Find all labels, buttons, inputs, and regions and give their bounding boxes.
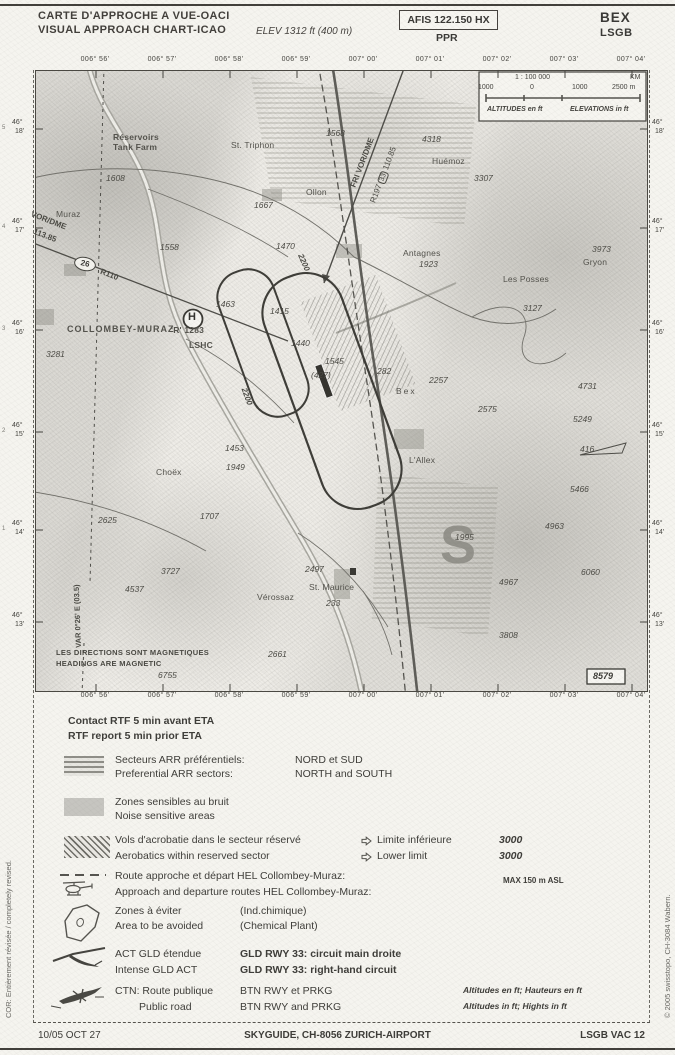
- latitude-label-right-min: 15': [655, 431, 664, 439]
- right-frame-border: [649, 70, 650, 1023]
- longitude-label-top: 006° 59': [282, 56, 311, 63]
- longitude-label-bottom: 006° 56': [81, 692, 110, 699]
- helicopter-icon: [59, 879, 99, 902]
- variation-line: [82, 71, 104, 691]
- left-frame-border: [33, 70, 34, 1023]
- circuit-west-loop: [210, 262, 316, 425]
- copyright-note: © 2005 swisstopo, CH-3084 Wabern.: [663, 894, 672, 1018]
- lower-limit-en: Lower limit: [377, 850, 427, 862]
- correction-note: COR: Entièrement révisée / completely re…: [4, 860, 13, 1018]
- latitude-label-left-min: 16': [15, 329, 24, 337]
- latitude-label-right-min: 17': [655, 227, 664, 235]
- latitude-index: 3: [2, 326, 5, 332]
- latitude-label-left-deg: 46°: [12, 612, 23, 620]
- avoid-zone-en: Area to be avoided: [115, 920, 203, 932]
- latitude-label-right-deg: 46°: [652, 320, 663, 328]
- afis-frequency-box: AFIS 122.150 HX: [399, 10, 498, 30]
- footer-publisher: SKYGUIDE, CH-8056 ZURICH-AIRPORT: [0, 1030, 675, 1041]
- lower-limit-value-fr: 3000: [499, 834, 522, 846]
- contact-note-fr: Contact RTF 5 min avant ETA: [68, 715, 214, 727]
- avoid-zone-icon: [57, 901, 103, 948]
- latitude-label-right-deg: 46°: [652, 218, 663, 226]
- top-rule: [0, 4, 675, 6]
- longitude-label-top: 007° 01': [416, 56, 445, 63]
- longitude-label-top: 006° 57': [148, 56, 177, 63]
- longitude-label-bottom: 007° 03': [550, 692, 579, 699]
- ppr-label: PPR: [436, 32, 458, 44]
- latitude-label-left-deg: 46°: [12, 320, 23, 328]
- latitude-label-right-deg: 46°: [652, 119, 663, 127]
- bottom-rule: [0, 1048, 675, 1050]
- longitude-label-top: 007° 00': [349, 56, 378, 63]
- latitude-label-left-min: 17': [15, 227, 24, 235]
- latitude-label-right-deg: 46°: [652, 422, 663, 430]
- arr-sector-swatch: [64, 756, 104, 776]
- latitude-label-left-min: 14': [15, 529, 24, 537]
- arr-sectors-fr: Secteurs ARR préférentiels:: [115, 754, 245, 766]
- arr-sectors-value-en: NORTH and SOUTH: [295, 768, 392, 780]
- latitude-index: 2: [2, 428, 5, 434]
- aerobatics-en: Aerobatics within reserved sector: [115, 850, 270, 862]
- longitude-label-bottom: 007° 01': [416, 692, 445, 699]
- latitude-label-right-min: 13': [655, 621, 664, 629]
- latitude-label-right-deg: 46°: [652, 612, 663, 620]
- longitude-label-top: 006° 58': [215, 56, 244, 63]
- map-area: S: [35, 70, 648, 692]
- longitude-label-bottom: 007° 04': [617, 692, 646, 699]
- noise-areas-en: Noise sensitive areas: [115, 810, 215, 822]
- avoid-zone-value-en: (Chemical Plant): [240, 920, 318, 932]
- contact-note-en: RTF report 5 min prior ETA: [68, 730, 202, 742]
- caution-aircraft-icon: [49, 981, 107, 1014]
- glider-activity-en: Intense GLD ACT: [115, 964, 197, 976]
- hel-route-fr: Route approche et départ HEL Collombey-M…: [115, 870, 345, 882]
- caution-road-en: Public road: [139, 1001, 192, 1013]
- heliport-circle: [184, 310, 203, 329]
- glider-icon: [51, 945, 107, 974]
- elevation-note: ELEV 1312 ft (400 m): [256, 26, 352, 37]
- airport-name: BEX: [600, 10, 631, 25]
- hel-route-dash-sample: [60, 874, 106, 876]
- caution-road-value-en: BTN RWY and PRKG: [240, 1001, 341, 1013]
- latitude-index: 1: [2, 526, 5, 532]
- chart-title-en: VISUAL APPROACH CHART-ICAO: [38, 24, 226, 36]
- latitude-label-left-min: 13': [15, 621, 24, 629]
- latitude-label-right-min: 14': [655, 529, 664, 537]
- avoid-zone-fr: Zones à éviter: [115, 905, 182, 917]
- units-note-fr: Altitudes en ft; Hauteurs en ft: [463, 985, 582, 995]
- legend-panel: Contact RTF 5 min avant ETA RTF report 5…: [35, 705, 646, 1022]
- lower-limit-value-en: 3000: [499, 850, 522, 862]
- latitude-label-left-deg: 46°: [12, 520, 23, 528]
- noise-area-swatch: [64, 798, 104, 816]
- latitude-label-left-deg: 46°: [12, 422, 23, 430]
- latitude-index: 4: [2, 224, 5, 230]
- chart-page: CARTE D'APPROCHE A VUE-OACI VISUAL APPRO…: [0, 0, 675, 1055]
- monument-symbol: [350, 568, 356, 575]
- arr-sectors-en: Preferential ARR sectors:: [115, 768, 233, 780]
- latitude-label-right-deg: 46°: [652, 520, 663, 528]
- avoid-zone-value-fr: (Ind.chimique): [240, 905, 307, 917]
- chart-title-fr: CARTE D'APPROCHE A VUE-OACI: [38, 10, 230, 22]
- noise-areas-fr: Zones sensibles au bruit: [115, 796, 229, 808]
- sector-north-hatch: [251, 77, 476, 227]
- arr-sectors-value-fr: NORD et SUD: [295, 754, 363, 766]
- longitude-label-bottom: 006° 57': [148, 692, 177, 699]
- longitude-label-bottom: 006° 58': [215, 692, 244, 699]
- arrow-right-icon: [361, 852, 372, 862]
- longitude-label-top: 007° 03': [550, 56, 579, 63]
- lower-limit-fr: Limite inférieure: [377, 834, 452, 846]
- longitude-label-top: 007° 02': [483, 56, 512, 63]
- latitude-label-right-min: 18': [655, 128, 664, 136]
- glider-activity-value-fr: GLD RWY 33: circuit main droite: [240, 948, 401, 960]
- aerobatics-fr: Vols d'acrobatie dans le secteur réservé: [115, 834, 301, 846]
- airport-icao-code: LSGB: [600, 27, 633, 39]
- units-note-en: Altitudes in ft; Hights in ft: [463, 1001, 567, 1011]
- footer-chart-ref: LSGB VAC 12: [580, 1030, 645, 1041]
- latitude-index: 5: [2, 125, 5, 131]
- longitude-label-bottom: 007° 02': [483, 692, 512, 699]
- boxed-elevation-frame: [587, 669, 625, 684]
- latitude-label-left-deg: 46°: [12, 119, 23, 127]
- hel-route-en: Approach and departure routes HEL Collom…: [115, 886, 371, 898]
- longitude-label-top: 006° 56': [81, 56, 110, 63]
- longitude-label-bottom: 007° 00': [349, 692, 378, 699]
- hel-route-max-note: MAX 150 m ASL: [503, 876, 564, 885]
- glider-activity-fr: ACT GLD étendue: [115, 948, 201, 960]
- latitude-label-left-min: 15': [15, 431, 24, 439]
- glider-site-symbol: [580, 443, 626, 455]
- latitude-label-right-min: 16': [655, 329, 664, 337]
- latitude-label-left-min: 18': [15, 128, 24, 136]
- sector-letter-south: S: [440, 515, 476, 575]
- caution-road-value-fr: BTN RWY et PRKG: [240, 985, 332, 997]
- longitude-label-top: 007° 04': [617, 56, 646, 63]
- arrow-right-icon: [361, 836, 372, 846]
- longitude-label-bottom: 006° 59': [282, 692, 311, 699]
- map-linework: S: [36, 71, 647, 691]
- footer-divider: [33, 1022, 650, 1023]
- glider-activity-value-en: GLD RWY 33: right-hand circuit: [240, 964, 397, 976]
- aerobatics-swatch: [64, 836, 110, 858]
- latitude-label-left-deg: 46°: [12, 218, 23, 226]
- caution-road-fr: CTN: Route publique: [115, 985, 213, 997]
